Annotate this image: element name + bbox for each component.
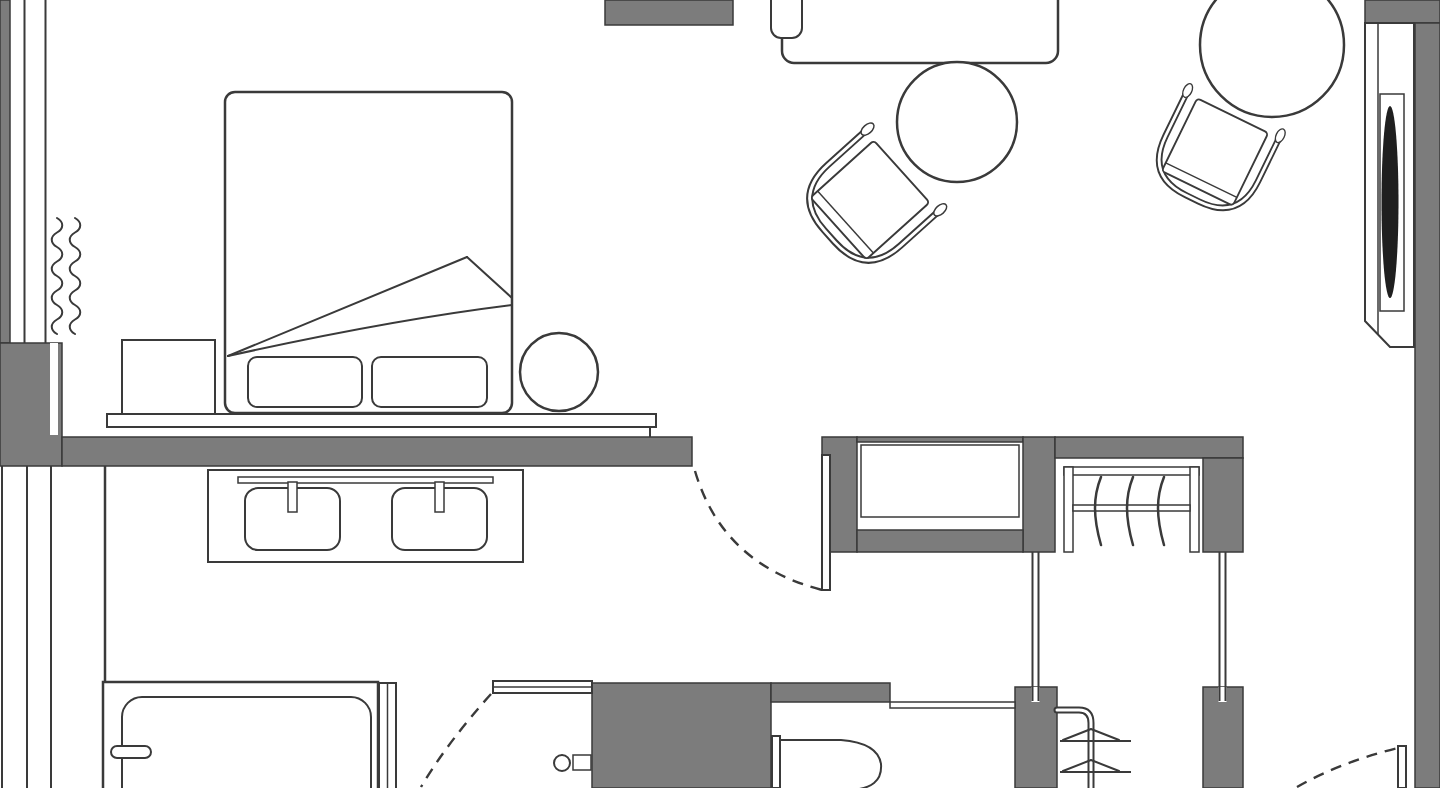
desk <box>782 0 1058 63</box>
faucet-right <box>435 482 444 512</box>
wall-right <box>1415 23 1440 788</box>
wall-wc-band <box>771 683 890 702</box>
floor-plan-page <box>0 0 1440 788</box>
wall-bottom-right-pier <box>1203 687 1243 788</box>
shower-valve-box <box>573 755 591 770</box>
toilet <box>780 740 881 788</box>
floor-plan-canvas <box>0 0 1440 788</box>
desk-chair <box>771 0 802 38</box>
wall-bottom-left-pier <box>1015 687 1057 788</box>
entry-door-leaf <box>1398 746 1406 788</box>
wall-closet-right <box>1203 458 1243 552</box>
faucet-left <box>288 482 297 512</box>
wall-top-middle <box>605 0 733 25</box>
tub-faucet <box>111 746 151 758</box>
shower-valve <box>554 755 570 771</box>
round-table-small <box>897 62 1017 182</box>
vanity <box>208 470 523 562</box>
wall-niche-bottom <box>857 530 1023 552</box>
headboard-ledge <box>107 414 656 427</box>
wall-closet-top <box>1055 437 1243 458</box>
pillow-right <box>372 357 487 407</box>
wardrobe-top-rail <box>1064 467 1199 475</box>
partition-wall <box>890 702 1015 708</box>
wall-wc-block <box>592 683 771 788</box>
nightstand <box>122 340 215 414</box>
wardrobe-panel-right <box>1190 467 1199 552</box>
bedroom-door-leaf <box>822 455 830 590</box>
tv-screen <box>1382 106 1399 298</box>
wall-glazing-slot <box>50 343 58 435</box>
wall-closet-top-thin <box>857 437 1023 442</box>
wardrobe-panel-left <box>1064 467 1073 552</box>
wall-bedroom-band <box>62 437 692 466</box>
wall-left-strip <box>0 0 10 343</box>
wall-top-right-band <box>1365 0 1440 23</box>
side-stool <box>520 333 598 411</box>
wall-closet-mid <box>1023 437 1055 552</box>
tv-niche-panel <box>1365 23 1414 347</box>
toilet-cistern <box>772 736 780 788</box>
pillow-left <box>248 357 362 407</box>
wardrobe-rod <box>1073 505 1190 511</box>
